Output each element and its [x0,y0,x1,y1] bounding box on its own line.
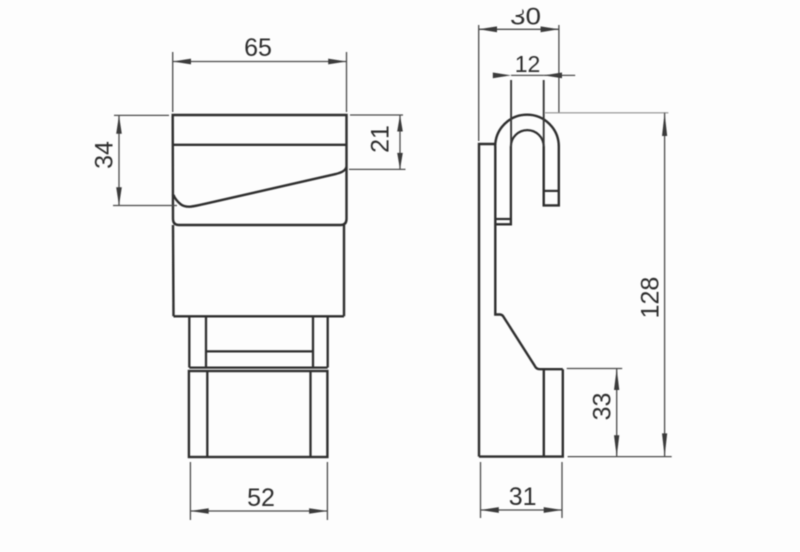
svg-text:12: 12 [515,51,541,77]
svg-text:65: 65 [244,34,272,62]
svg-text:128: 128 [637,277,665,319]
svg-text:33: 33 [589,393,617,421]
svg-text:21: 21 [367,125,395,153]
svg-text:52: 52 [247,484,275,512]
svg-text:31: 31 [509,483,537,511]
svg-text:34: 34 [91,141,119,169]
